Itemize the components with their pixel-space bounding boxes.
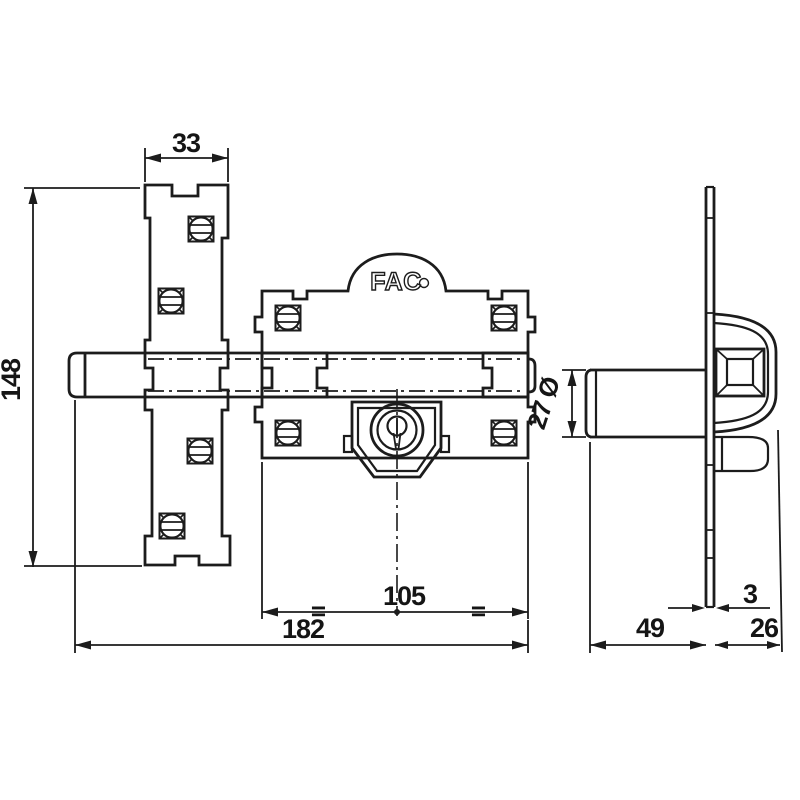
dimension-bracket-depth: 26 <box>715 430 782 652</box>
dimension-body-width: 105 = = <box>262 462 528 626</box>
dimension-value: 33 <box>172 128 201 158</box>
dimension-value: 105 <box>383 581 426 611</box>
fac-logo-text: FAC <box>370 268 422 296</box>
dimension-cylinder-depth: 49 <box>590 442 706 653</box>
lock-technical-drawing: FAC 33 <box>0 0 800 800</box>
dimension-value: 49 <box>636 613 665 643</box>
loop-bevel <box>753 385 764 396</box>
loop-bevel <box>716 385 727 396</box>
lock-body: FAC <box>255 254 535 458</box>
arrowhead-icon <box>75 641 91 650</box>
bolt-bar <box>69 353 535 397</box>
dimension-value: 182 <box>282 614 324 644</box>
arrowhead-icon <box>568 421 577 437</box>
dimension-keep-height: 148 <box>0 188 142 567</box>
bracket-inner-curve <box>714 323 768 423</box>
screw-icon <box>159 289 184 314</box>
bolt-loop-inner <box>727 359 753 385</box>
arrowhead-icon <box>716 604 729 612</box>
extension-line <box>778 430 782 652</box>
fac-logo: FAC <box>370 268 428 296</box>
arrowhead-icon <box>29 551 38 567</box>
dimension-value: 148 <box>0 358 26 401</box>
bracket-outer-curve <box>714 314 776 432</box>
side-view: 27 Ø 3 49 26 <box>521 187 782 653</box>
technical-drawing-page: FAC 33 <box>0 0 800 800</box>
dimension-plate-thickness: 3 <box>668 579 770 612</box>
symmetry-mark: = <box>471 596 486 626</box>
screw-icon <box>189 217 214 242</box>
arrowhead-icon <box>29 188 38 204</box>
screw-icon <box>492 421 517 446</box>
arrowhead-icon <box>262 608 278 617</box>
arrowhead-icon <box>715 641 728 649</box>
keep-plate <box>145 185 230 565</box>
screw-icon <box>276 306 301 331</box>
arrowhead-icon <box>590 641 606 650</box>
dimension-cylinder-diameter: 27 Ø <box>521 370 586 437</box>
dimension-keep-width: 33 <box>145 128 228 182</box>
bolt-cylinder <box>586 370 706 437</box>
arrowhead-icon <box>512 641 528 650</box>
arrowhead-icon <box>512 608 528 617</box>
arrowhead-icon <box>568 370 577 386</box>
keep-bracket-profile <box>714 314 776 471</box>
screw-icon <box>188 439 213 464</box>
cylinder-end-cap <box>586 370 591 437</box>
dimension-value: 26 <box>750 613 779 643</box>
arrowhead-icon <box>690 641 706 650</box>
screw-icon <box>276 421 301 446</box>
front-view: FAC 33 <box>0 128 535 653</box>
screw-icon <box>492 306 517 331</box>
bolt-end-cap <box>69 353 85 397</box>
arrowhead-icon <box>212 154 228 163</box>
mounting-plate <box>706 187 714 607</box>
loop-bevel <box>753 349 764 359</box>
screw-icon <box>160 514 185 539</box>
dimension-value: 3 <box>743 579 758 609</box>
arrowhead-icon <box>692 604 705 612</box>
arrowhead-icon <box>145 154 161 163</box>
loop-bevel <box>716 349 727 359</box>
